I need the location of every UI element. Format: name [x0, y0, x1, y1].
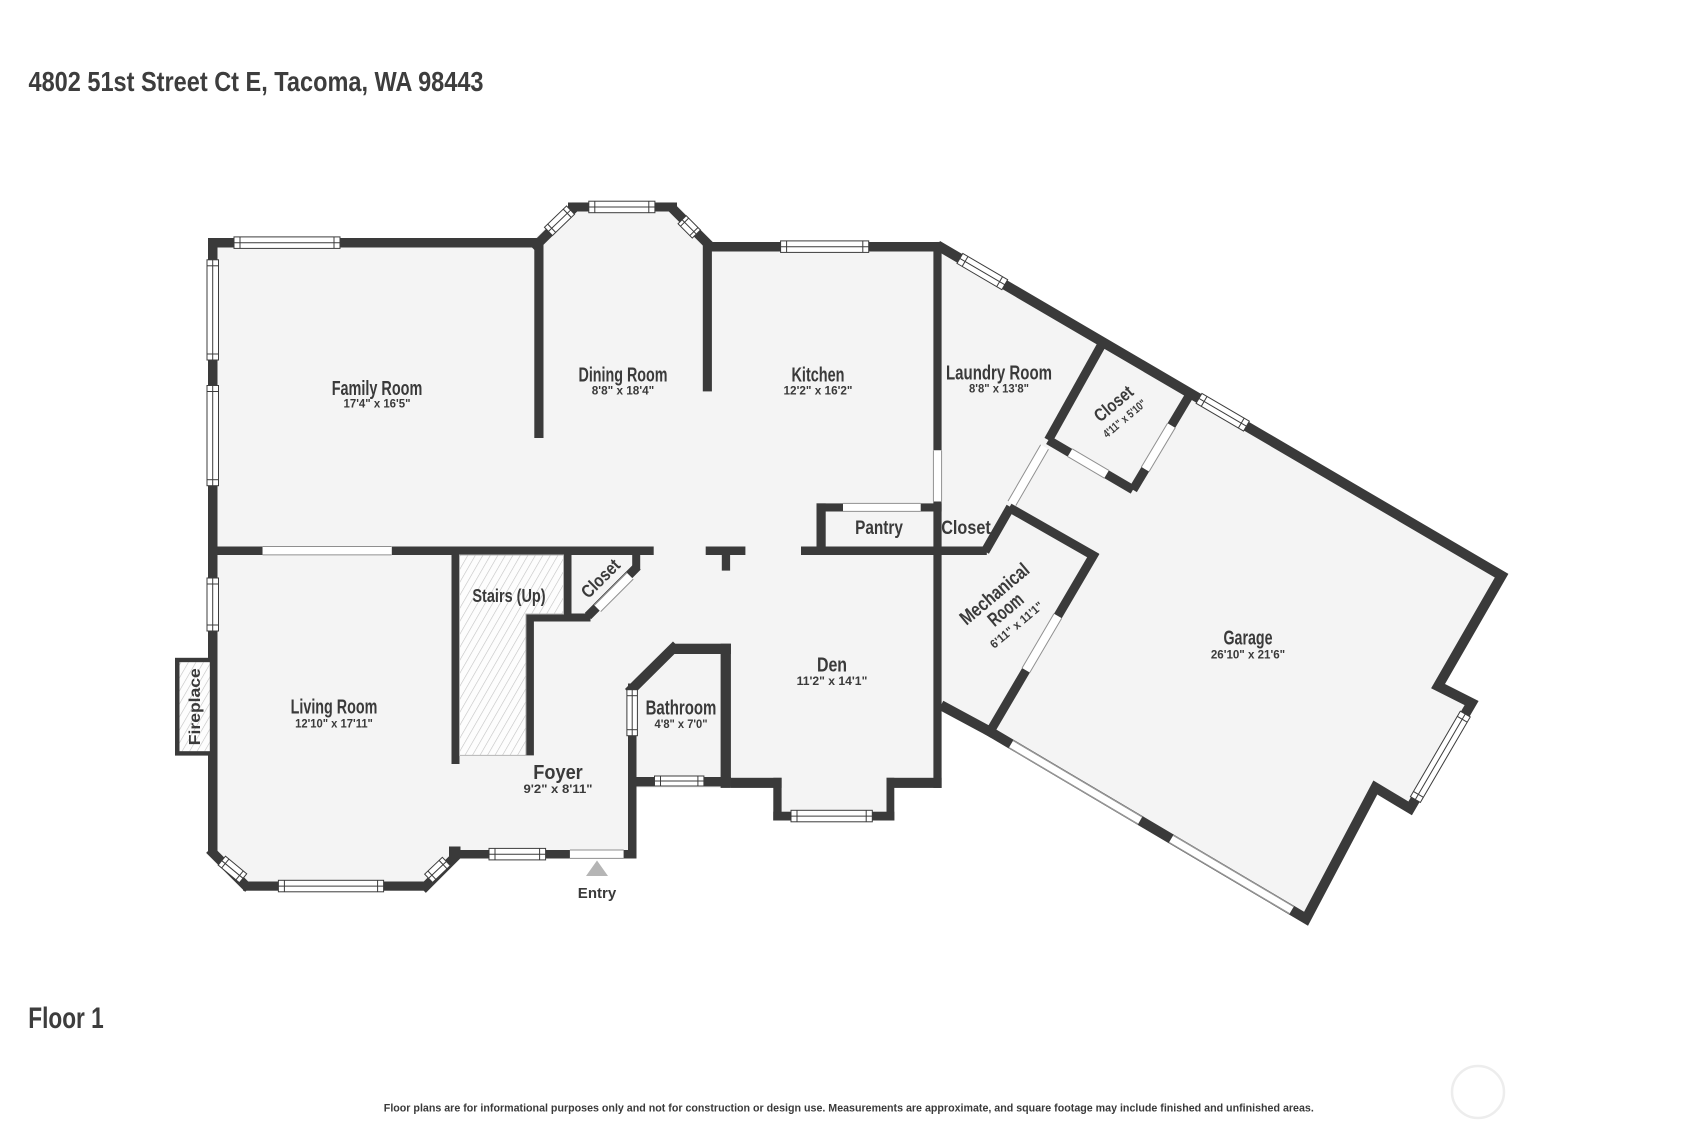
svg-text:Foyer: Foyer	[533, 762, 583, 784]
svg-text:11'2" x 14'1": 11'2" x 14'1"	[797, 674, 868, 688]
svg-text:Closet: Closet	[941, 518, 991, 539]
svg-text:17'4" x 16'5": 17'4" x 16'5"	[344, 397, 411, 411]
svg-text:Fireplace: Fireplace	[187, 668, 204, 745]
svg-text:9'2" x 8'11": 9'2" x 8'11"	[524, 782, 593, 796]
svg-text:Living Room: Living Room	[291, 697, 378, 719]
svg-text:Garage: Garage	[1224, 628, 1273, 650]
svg-text:Pantry: Pantry	[855, 518, 903, 539]
svg-text:Entry: Entry	[578, 886, 616, 902]
svg-text:26'10" x 21'6": 26'10" x 21'6"	[1211, 648, 1285, 662]
svg-text:8'8" x 13'8": 8'8" x 13'8"	[969, 382, 1029, 396]
svg-text:12'2" x 16'2": 12'2" x 16'2"	[784, 384, 853, 398]
svg-text:Floor plans are for informatio: Floor plans are for informational purpos…	[384, 1103, 1314, 1115]
svg-text:4'8" x 7'0": 4'8" x 7'0"	[655, 717, 708, 731]
svg-text:4802 51st Street Ct E, Tacoma,: 4802 51st Street Ct E, Tacoma, WA 98443	[29, 66, 484, 97]
svg-text:Stairs (Up): Stairs (Up)	[472, 586, 545, 606]
svg-text:8'8" x 18'4": 8'8" x 18'4"	[592, 384, 655, 398]
svg-text:Floor 1: Floor 1	[28, 1002, 103, 1035]
svg-text:12'10" x 17'11": 12'10" x 17'11"	[295, 717, 373, 731]
